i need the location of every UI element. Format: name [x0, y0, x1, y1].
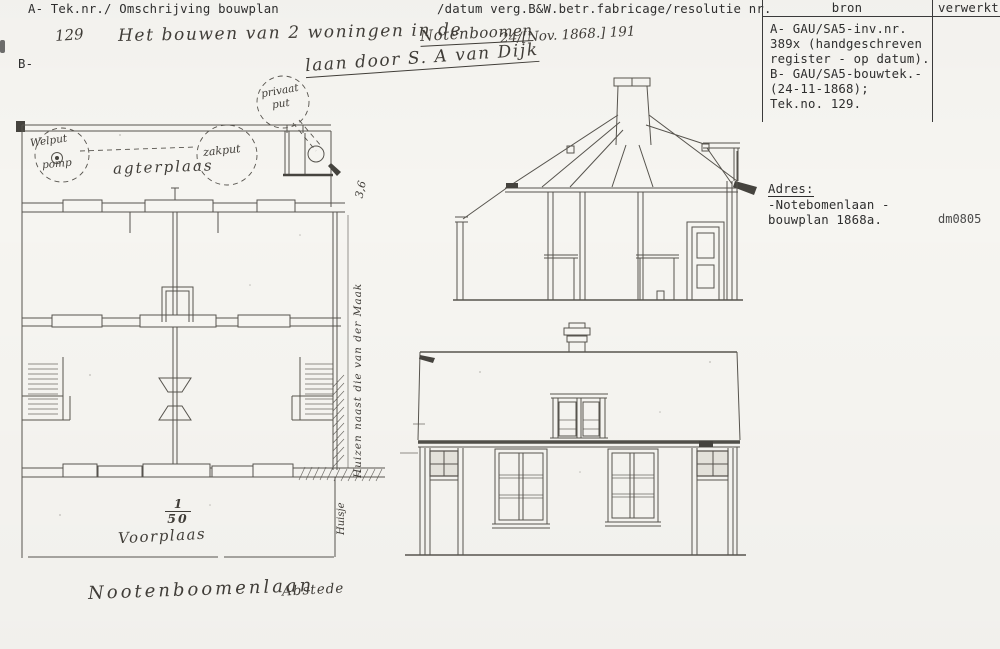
datum-field-label: /datum verg.B&W.betr.fabricage/resolutie… [437, 2, 772, 16]
section-furniture [544, 255, 679, 300]
pomp-label: pomp [42, 157, 73, 172]
stairs-left [22, 357, 70, 420]
entrance-door-left [425, 448, 463, 555]
scanned-bouwplan-document: A- Tek.nr./ Omschrijving bouwplan /datum… [0, 0, 1000, 649]
scale-numerator: 1 [158, 499, 198, 510]
district-label: Abstede [282, 580, 345, 599]
sash-window-left [492, 449, 550, 528]
table-border-middle [932, 0, 933, 122]
fireplace [159, 378, 191, 420]
facade-walls [420, 447, 737, 555]
privy-structure [283, 131, 341, 176]
attic-floor [505, 181, 757, 195]
cross-section-drawing [420, 70, 770, 315]
adres-block: Adres: -Notebomenlaan - bouwplan 1868a. [768, 182, 890, 229]
roof-rafters [463, 115, 737, 219]
dormer-window [550, 394, 608, 438]
boundary-annotation-lower: Huisje [336, 502, 347, 535]
boundary-annotation-vertical: Huizen naast die van der Maak [352, 283, 364, 478]
boundary-wall-hatch [299, 375, 382, 481]
agterplaas-label: agterplaas [113, 156, 214, 178]
well-leader-dashes [80, 147, 196, 151]
scan-edge-mark [0, 40, 5, 53]
adres-bouwplan: bouwplan 1868a. [768, 213, 890, 229]
handwritten-tek-nr: 129 [54, 25, 84, 45]
right-wall [727, 151, 737, 300]
adres-label: Adres: [768, 182, 814, 197]
sash-window-right [605, 449, 661, 526]
roof [418, 352, 740, 440]
scale-denominator: 50 [158, 512, 198, 525]
bron-source-line: Tek.no. 129. [770, 97, 930, 112]
eaves-band [418, 442, 740, 447]
leader-ticks [400, 424, 425, 453]
bron-source-list: A- GAU/SA5-inv.nr. 389x (handgeschreven … [770, 22, 930, 112]
chimney [614, 78, 651, 145]
bron-source-line: register - op datum). [770, 52, 930, 67]
bron-source-line: B- GAU/SA5-bouwtek.- [770, 67, 930, 82]
scale-fraction: 1 50 [158, 499, 198, 525]
table-header-underline [762, 16, 1000, 17]
field-a-label: A- Tek.nr./ Omschrijving bouwplan [28, 2, 279, 16]
street-name-label: Nootenboomenlaan [88, 575, 315, 604]
bron-column-header: bron [762, 1, 932, 15]
interior-studs [548, 192, 643, 300]
adres-street: -Notebomenlaan - [768, 198, 890, 214]
handwritten-description: Het bouwen van 2 woningen in de [118, 20, 463, 46]
plan-outline [16, 121, 385, 558]
bron-source-line: A- GAU/SA5-inv.nr. [770, 22, 930, 37]
bron-source-line: 389x (handgeschreven [770, 37, 930, 52]
scan-code: dm0805 [938, 212, 981, 226]
scan-speckle [479, 361, 711, 473]
chimney [564, 323, 590, 352]
entrance-door-right [692, 441, 733, 555]
panel-door [687, 222, 724, 300]
stairs-right [292, 357, 333, 420]
privaat-put-label-line2: put [271, 97, 290, 111]
left-post [455, 217, 468, 300]
field-b-label: B- [18, 57, 33, 71]
verwerkt-column-header: verwerkt [938, 1, 999, 15]
front-elevation-drawing [400, 322, 752, 567]
bron-source-line: (24-11-1868); [770, 82, 930, 97]
